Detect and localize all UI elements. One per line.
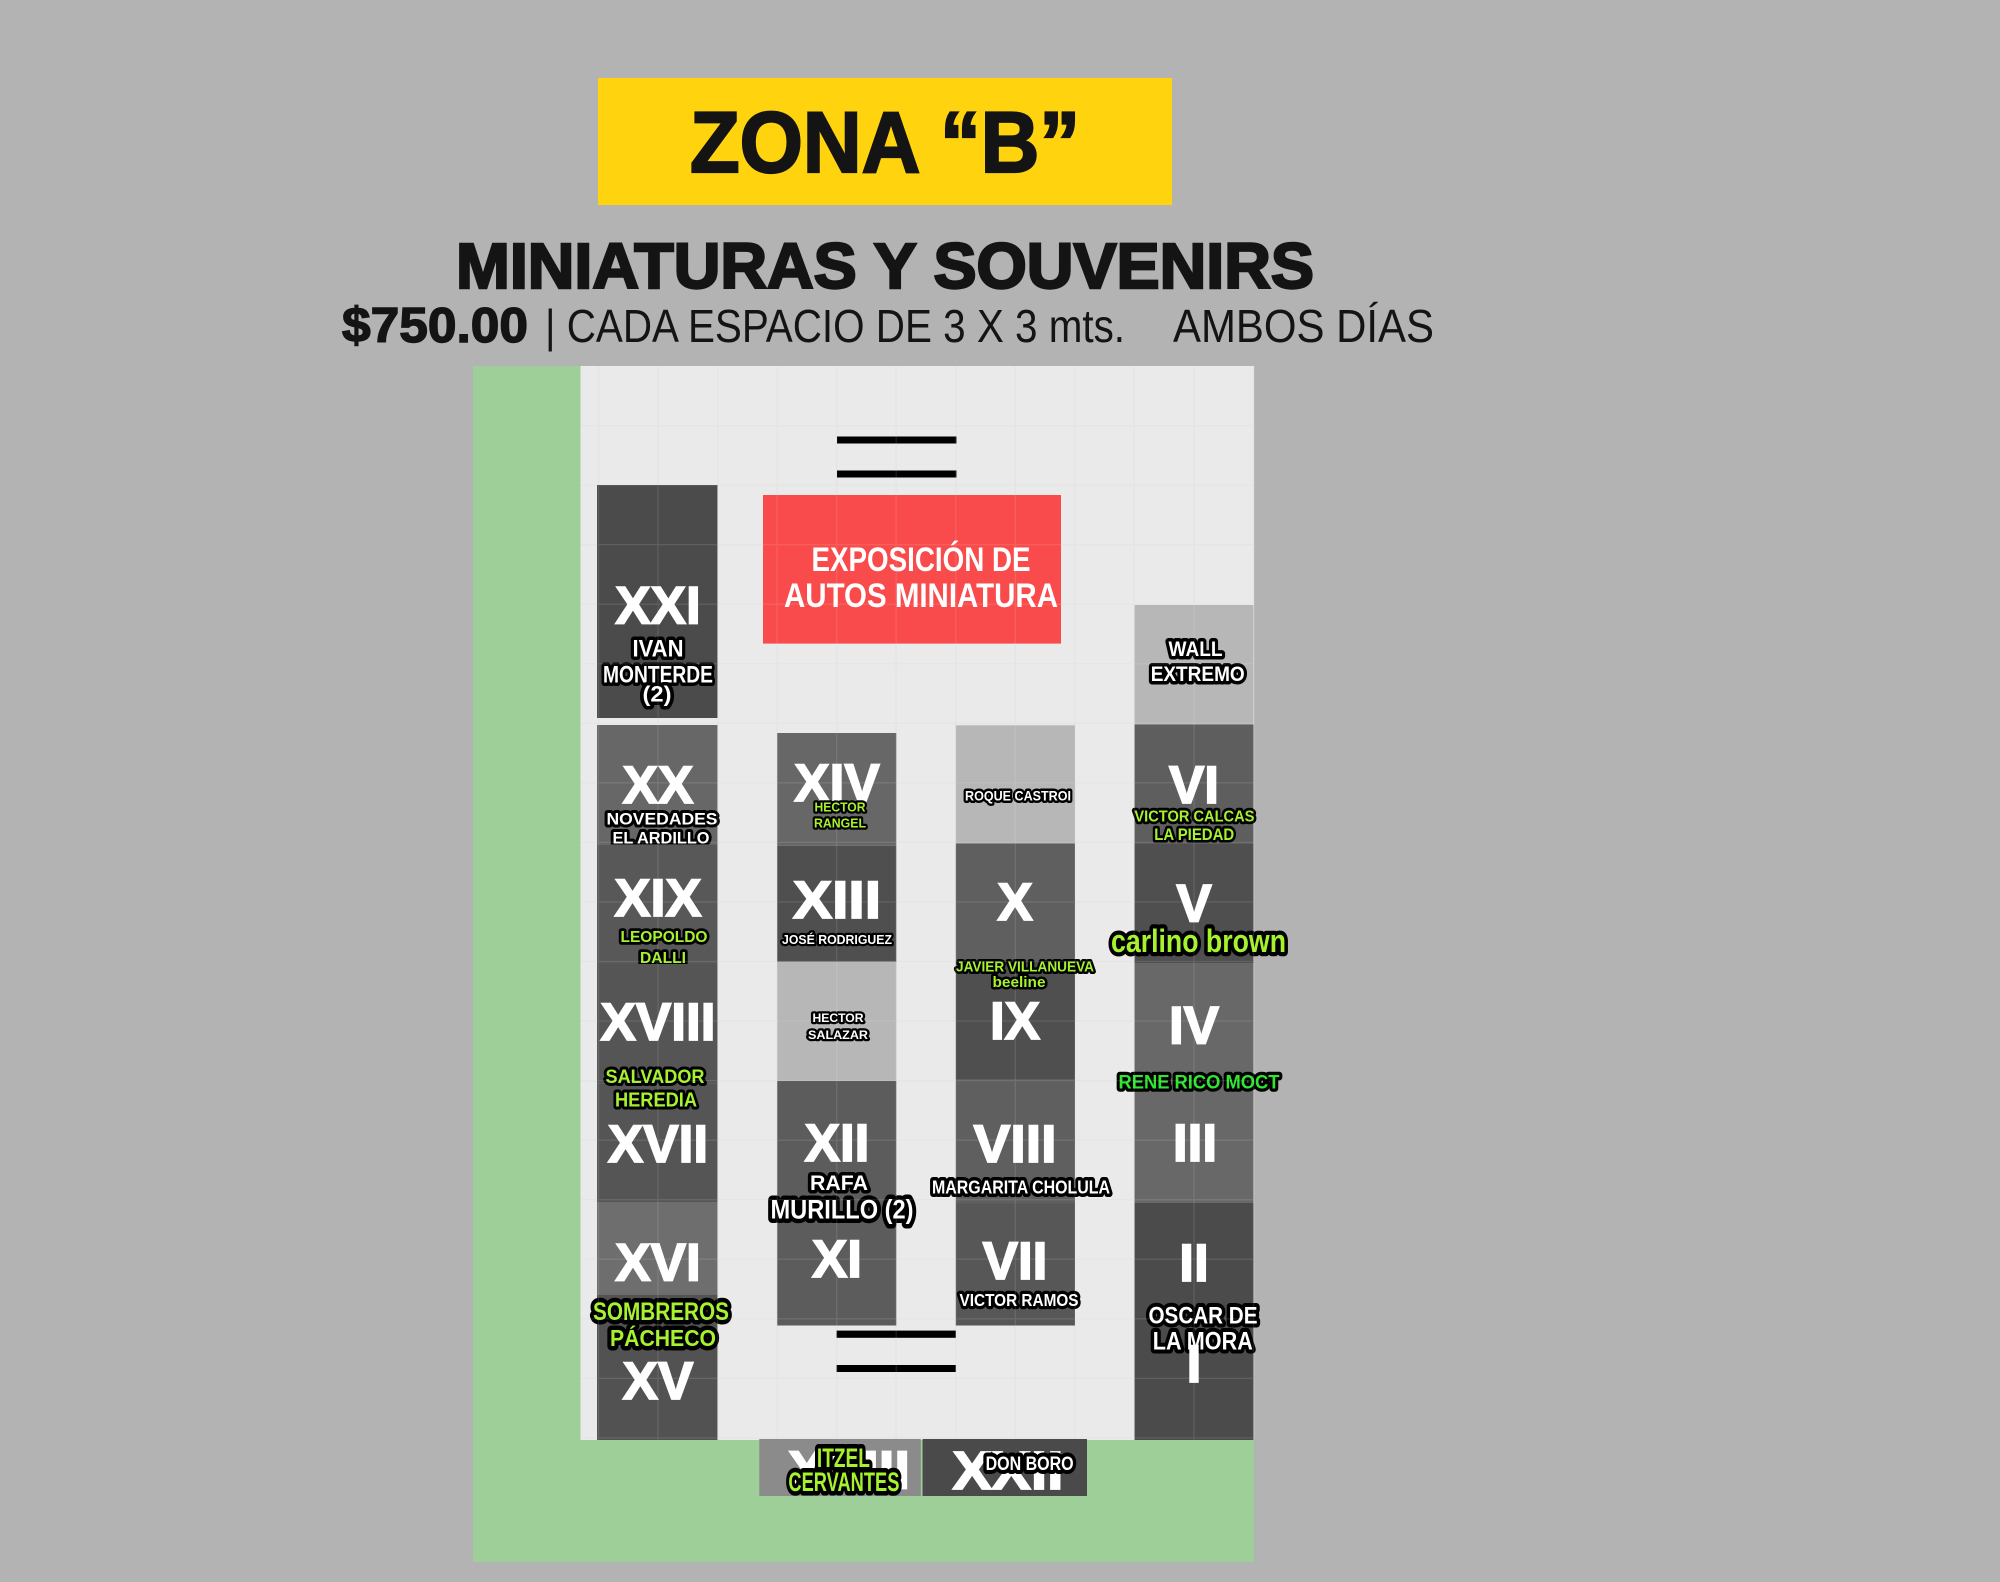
svg-text:RANGEL: RANGEL: [814, 816, 866, 831]
svg-text:DON BORO: DON BORO: [986, 1454, 1074, 1475]
svg-text:SALVADOR: SALVADOR: [606, 1067, 705, 1088]
svg-text:SALAZAR: SALAZAR: [808, 1030, 869, 1042]
svg-text:HECTOR: HECTOR: [813, 1013, 865, 1025]
svg-text:EXTREMO: EXTREMO: [1151, 663, 1245, 686]
svg-text:beeline: beeline: [993, 974, 1046, 991]
svg-text:HECTOR: HECTOR: [815, 799, 867, 814]
svg-text:MURILLO (2): MURILLO (2): [771, 1194, 914, 1224]
svg-text:VICTOR RAMOS: VICTOR RAMOS: [960, 1290, 1079, 1310]
svg-text:SOMBREROS: SOMBREROS: [593, 1298, 729, 1326]
svg-text:LA MORA: LA MORA: [1153, 1329, 1253, 1356]
svg-text:WALL: WALL: [1169, 638, 1223, 661]
svg-text:AMBOS DÍAS: AMBOS DÍAS: [1173, 300, 1434, 352]
svg-text:MINIATURAS Y SOUVENIRS: MINIATURAS Y SOUVENIRS: [456, 230, 1314, 302]
svg-text:| CADA ESPACIO DE 3 X 3 mts.: | CADA ESPACIO DE 3 X 3 mts.: [545, 300, 1125, 352]
svg-text:PÁCHECO: PÁCHECO: [610, 1324, 716, 1351]
svg-text:AUTOS MINIATURA: AUTOS MINIATURA: [784, 577, 1058, 615]
svg-text:HEREDIA: HEREDIA: [615, 1089, 697, 1111]
svg-text:LEOPOLDO: LEOPOLDO: [621, 929, 708, 946]
svg-text:carlino brown: carlino brown: [1111, 923, 1286, 959]
svg-text:NOVEDADES: NOVEDADES: [607, 809, 718, 828]
svg-text:ROQUE CASTROI: ROQUE CASTROI: [965, 787, 1071, 803]
svg-text:CERVANTES: CERVANTES: [788, 1467, 899, 1497]
svg-text:EXPOSICIÓN DE: EXPOSICIÓN DE: [812, 541, 1031, 579]
svg-text:$750.00: $750.00: [342, 299, 528, 353]
svg-text:III: III: [1173, 1114, 1217, 1173]
svg-text:(2): (2): [643, 682, 672, 707]
svg-text:MARGARITA CHOLULA: MARGARITA CHOLULA: [932, 1177, 1110, 1198]
svg-text:OSCAR DE: OSCAR DE: [1149, 1302, 1258, 1329]
svg-text:ZONA “B”: ZONA “B”: [690, 95, 1080, 191]
svg-text:RAFA: RAFA: [810, 1172, 868, 1195]
svg-text:RENE RICO MOCT: RENE RICO MOCT: [1119, 1073, 1280, 1094]
